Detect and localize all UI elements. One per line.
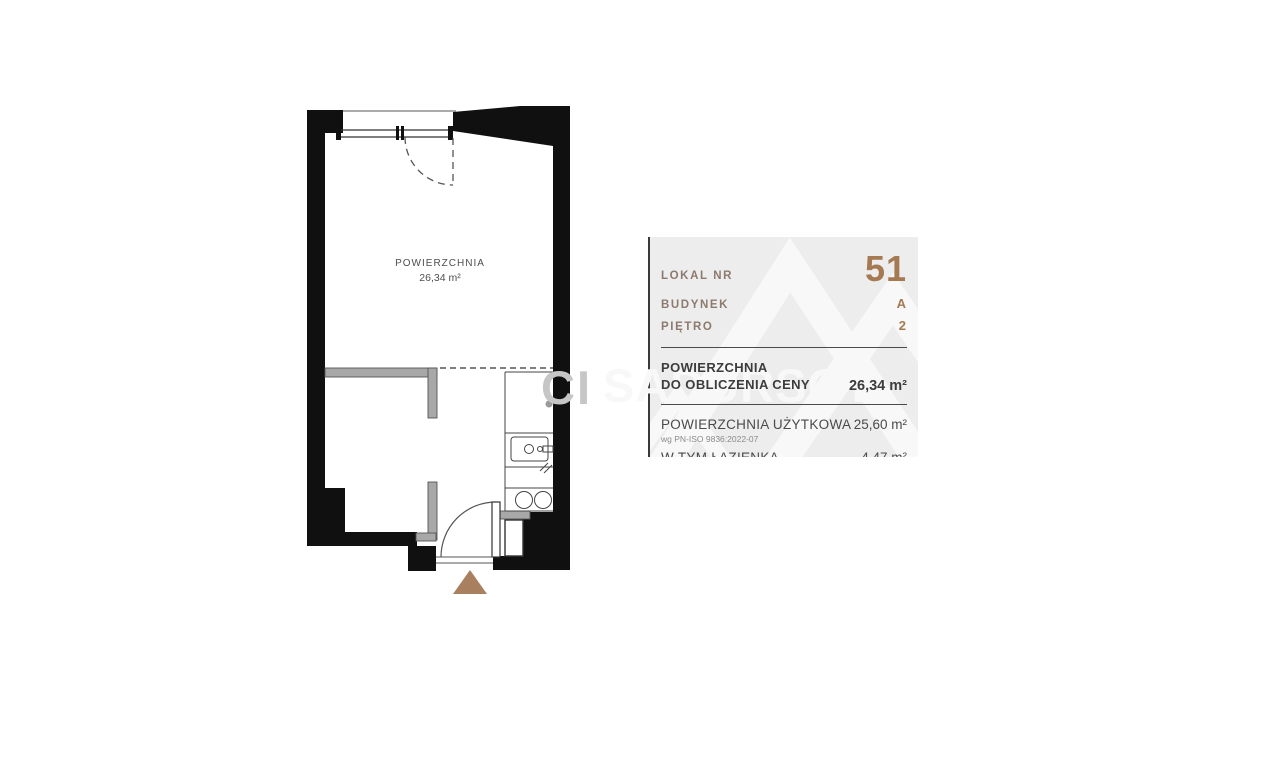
pietro-value: 2 — [899, 318, 907, 333]
usable-area-label: POWIERZCHNIA UŻYTKOWA — [661, 417, 851, 432]
wall-right — [553, 140, 570, 512]
floor-plan-page: POWIERZCHNIA 26,34 m² CI LOKAL NR 51 BUD… — [0, 0, 1280, 765]
window-assembly — [336, 126, 453, 186]
window-post-right — [448, 126, 453, 140]
entry-cabinet — [505, 520, 523, 556]
usable-area-labels: POWIERZCHNIA UŻYTKOWA wg PN-ISO 9836:202… — [661, 417, 851, 444]
usable-area-section: POWIERZCHNIA UŻYTKOWA wg PN-ISO 9836:202… — [661, 417, 907, 444]
price-area-label-line1: POWIERZCHNIA — [661, 360, 810, 377]
entrance-door-swing-arc — [441, 502, 496, 557]
wall-left — [307, 110, 325, 546]
usable-area-value: 25,60 m² — [854, 417, 907, 444]
area-label-value: 26,34 m² — [419, 272, 461, 284]
lokal-nr-value: 51 — [865, 253, 907, 285]
info-row-budynek: BUDYNEK A — [661, 296, 907, 311]
divider-line — [661, 347, 907, 348]
partition-right-lower — [428, 482, 437, 540]
price-area-label: POWIERZCHNIA DO OBLICZENIA CENY — [661, 360, 810, 394]
wall-bottom-bathroom — [307, 532, 417, 546]
budynek-value: A — [897, 296, 907, 311]
partition-right-upper — [428, 368, 437, 418]
partition-foot — [416, 533, 436, 541]
wall-top-right-slanted — [453, 106, 570, 146]
pietro-label: PIĘTRO — [661, 321, 713, 333]
entrance-door-leaf — [492, 502, 500, 557]
bathroom-area-label: W TYM ŁAZIENKA — [661, 450, 779, 457]
window-post-left — [336, 126, 341, 140]
balcony-door-swing-arc — [405, 137, 453, 185]
faucet-base — [538, 447, 543, 452]
partition-top — [325, 368, 437, 377]
wall-bottom-right-band — [493, 556, 570, 570]
price-area-label-line2: DO OBLICZENIA CENY — [661, 377, 810, 394]
hob-burner-right — [535, 492, 552, 509]
price-area-value: 26,34 m² — [849, 378, 907, 394]
watermark-fragment-left: CI — [541, 360, 592, 415]
sink-drain — [525, 445, 534, 454]
area-label: POWIERZCHNIA 26,34 m² — [395, 258, 485, 284]
info-row-pietro: PIĘTRO 2 — [661, 318, 907, 333]
exterior-walls — [307, 106, 570, 571]
usable-area-norm-note: wg PN-ISO 9836:2022-07 — [661, 434, 851, 444]
wall-entry-step — [408, 546, 436, 571]
bathroom-area-value: 4,47 m² — [861, 450, 907, 457]
price-area-section: POWIERZCHNIA DO OBLICZENIA CENY 26,34 m² — [661, 360, 907, 394]
partition-kitchen-stub — [497, 511, 530, 519]
info-row-lokal: LOKAL NR 51 — [661, 253, 907, 285]
lokal-nr-label: LOKAL NR — [661, 270, 733, 285]
entrance-door — [436, 502, 500, 563]
window-mullion — [396, 126, 399, 140]
unit-info-panel: LOKAL NR 51 BUDYNEK A PIĘTRO 2 POWIERZCH… — [648, 237, 918, 457]
divider-line — [661, 404, 907, 405]
entrance-arrow — [453, 570, 487, 594]
hob-burner-left — [516, 492, 533, 509]
floorplan-drawing: POWIERZCHNIA 26,34 m² — [0, 0, 640, 640]
area-label-title: POWIERZCHNIA — [395, 258, 485, 269]
window-mullion — [401, 126, 404, 140]
budynek-label: BUDYNEK — [661, 299, 729, 311]
bathroom-area-section: W TYM ŁAZIENKA 4,47 m² — [661, 450, 907, 457]
panel-content: LOKAL NR 51 BUDYNEK A PIĘTRO 2 POWIERZCH… — [650, 237, 918, 457]
